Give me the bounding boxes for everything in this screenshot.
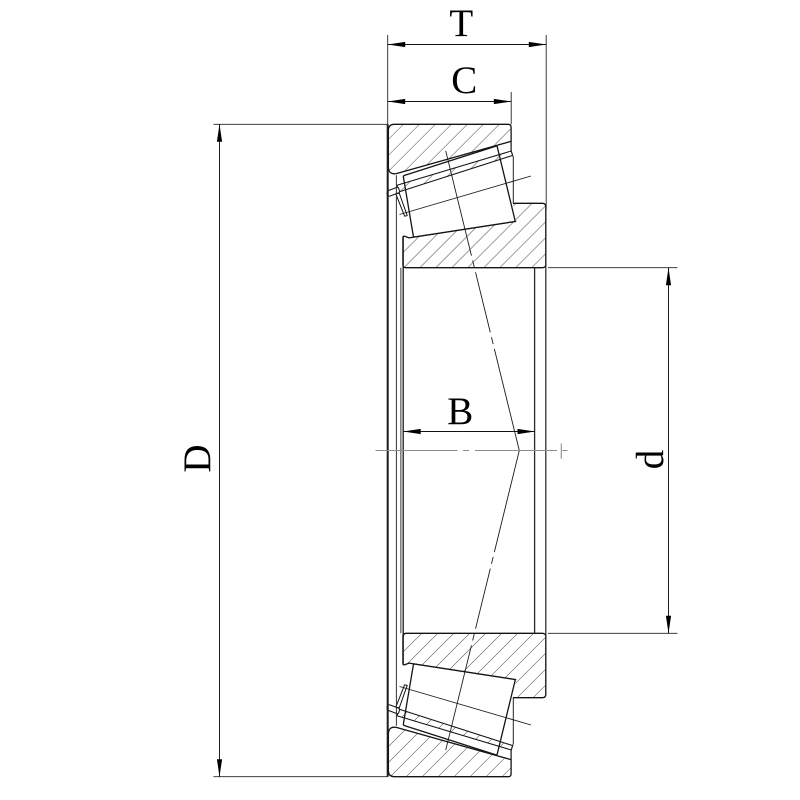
svg-text:d: d <box>629 449 672 469</box>
svg-text:C: C <box>451 59 477 102</box>
svg-text:D: D <box>176 444 219 472</box>
svg-text:T: T <box>449 2 473 45</box>
svg-text:B: B <box>447 390 473 433</box>
